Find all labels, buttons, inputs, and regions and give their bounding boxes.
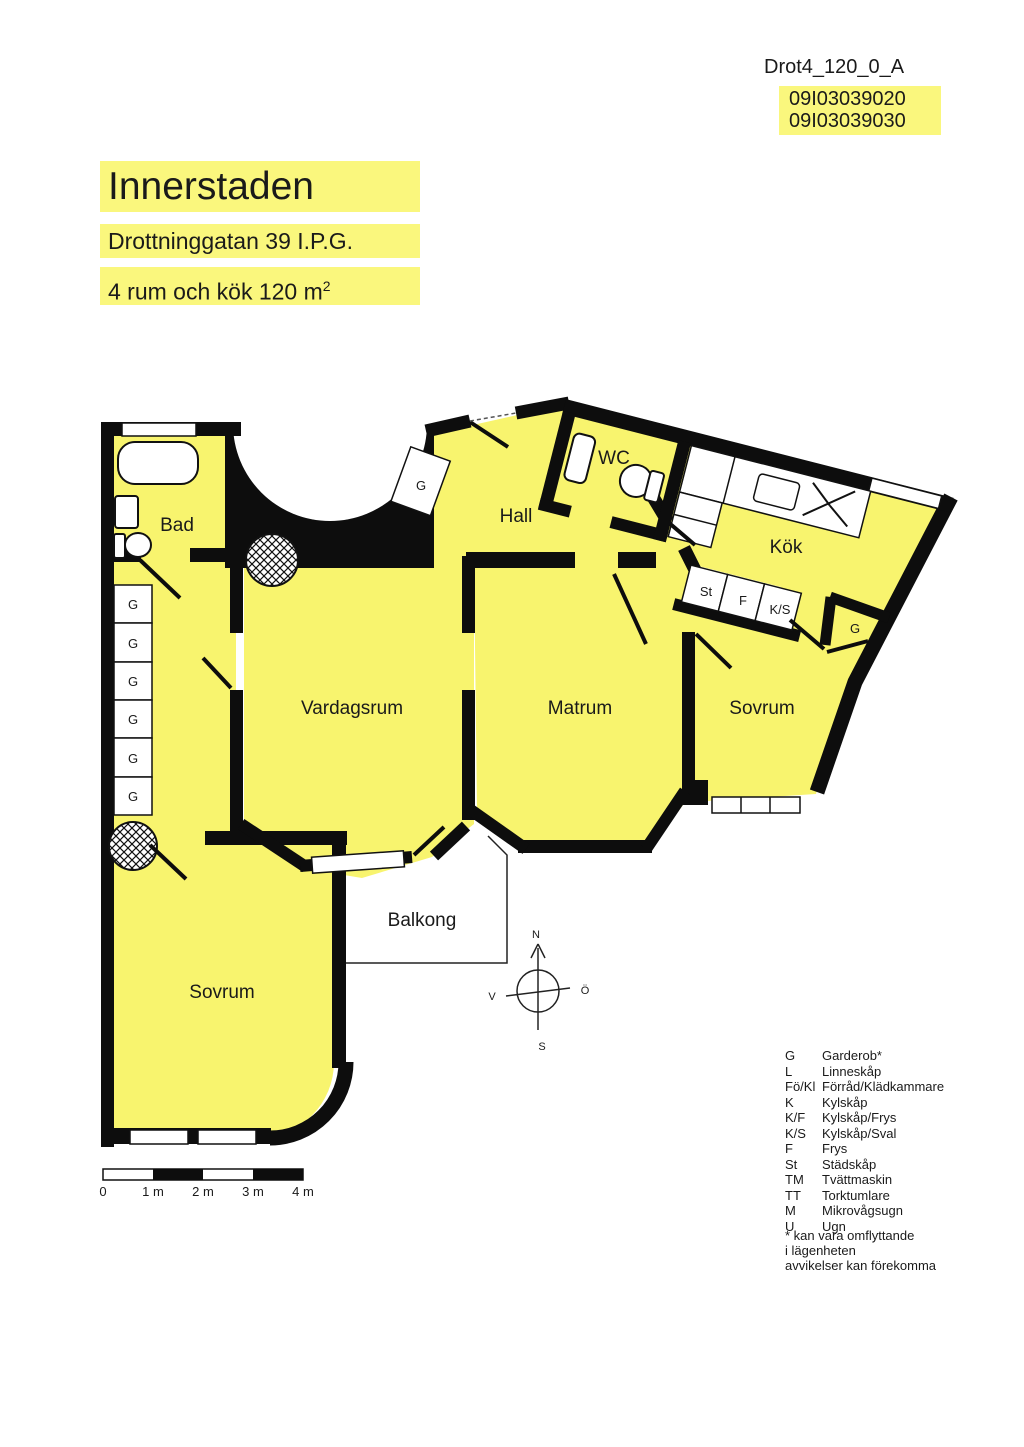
scale-1m: 1 m — [142, 1184, 164, 1199]
room-label-sovrum-left: Sovrum — [189, 982, 254, 1003]
legend-row: KKylskåp — [785, 1095, 944, 1111]
legend-row: TMTvättmaskin — [785, 1172, 944, 1188]
compass-west: V — [488, 991, 496, 1003]
scale-4m: 4 m — [292, 1184, 314, 1199]
room-label-bad: Bad — [160, 515, 194, 536]
scale-0: 0 — [99, 1184, 106, 1199]
garderob-label-3: G — [128, 674, 138, 689]
frys-label: F — [739, 593, 747, 608]
garderob-column — [114, 585, 152, 815]
legend-row: FFrys — [785, 1141, 944, 1157]
room-label-balkong: Balkong — [388, 910, 457, 931]
kakelugn-vardagsrum — [246, 534, 298, 586]
legend: GGarderob* LLinneskåp Fö/KlFörråd/Klädka… — [785, 1048, 944, 1234]
legend-row: LLinneskåp — [785, 1064, 944, 1080]
sovrum-right-window — [712, 797, 800, 813]
garderob-label-hall: G — [416, 478, 426, 493]
legend-row: GGarderob* — [785, 1048, 944, 1064]
legend-row: StStädskåp — [785, 1157, 944, 1173]
legend-row: TTTorktumlare — [785, 1188, 944, 1204]
bad-window — [122, 423, 196, 436]
legend-row: K/SKylskåp/Sval — [785, 1126, 944, 1142]
stadskap-label: St — [700, 584, 713, 599]
garderob-label-5: G — [128, 751, 138, 766]
compass-east: Ö — [581, 985, 590, 997]
footnote-line-1: * kan vara omflyttande — [785, 1228, 936, 1243]
kyl-sval-label: K/S — [770, 602, 791, 617]
garderob-label-2: G — [128, 636, 138, 651]
garderob-label-kok: G — [850, 621, 860, 636]
garderob-label-4: G — [128, 712, 138, 727]
bad-sink — [115, 496, 138, 528]
room-label-sovrum-right: Sovrum — [729, 698, 794, 719]
garderob-label-1: G — [128, 597, 138, 612]
footnote-line-2: i lägenheten — [785, 1243, 936, 1258]
scale-bar: 0 1 m 2 m 3 m 4 m — [99, 1169, 313, 1199]
room-label-kok: Kök — [770, 537, 803, 558]
legend-row: K/FKylskåp/Frys — [785, 1110, 944, 1126]
scale-3m: 3 m — [242, 1184, 264, 1199]
footnote: * kan vara omflyttande i lägenheten avvi… — [785, 1228, 936, 1273]
room-label-wc: WC — [598, 448, 630, 469]
bad-toilet — [125, 533, 151, 557]
bad-toilet-tank — [114, 534, 125, 558]
compass-icon — [506, 944, 570, 1030]
room-label-matrum: Matrum — [548, 698, 612, 719]
footnote-line-3: avvikelser kan förekomma — [785, 1258, 936, 1273]
legend-row: Fö/KlFörråd/Klädkammare — [785, 1079, 944, 1095]
scale-2m: 2 m — [192, 1184, 214, 1199]
compass-south: S — [538, 1041, 545, 1053]
floor-plan-sheet: Drot4_120_0_A 09I03039020 09I03039030 In… — [0, 0, 1024, 1447]
room-label-hall: Hall — [500, 506, 533, 527]
legend-row: MMikrovågsugn — [785, 1203, 944, 1219]
garderob-label-6: G — [128, 789, 138, 804]
bathtub — [118, 442, 198, 484]
compass-north: N — [532, 929, 540, 941]
room-label-vardagsrum: Vardagsrum — [301, 698, 403, 719]
